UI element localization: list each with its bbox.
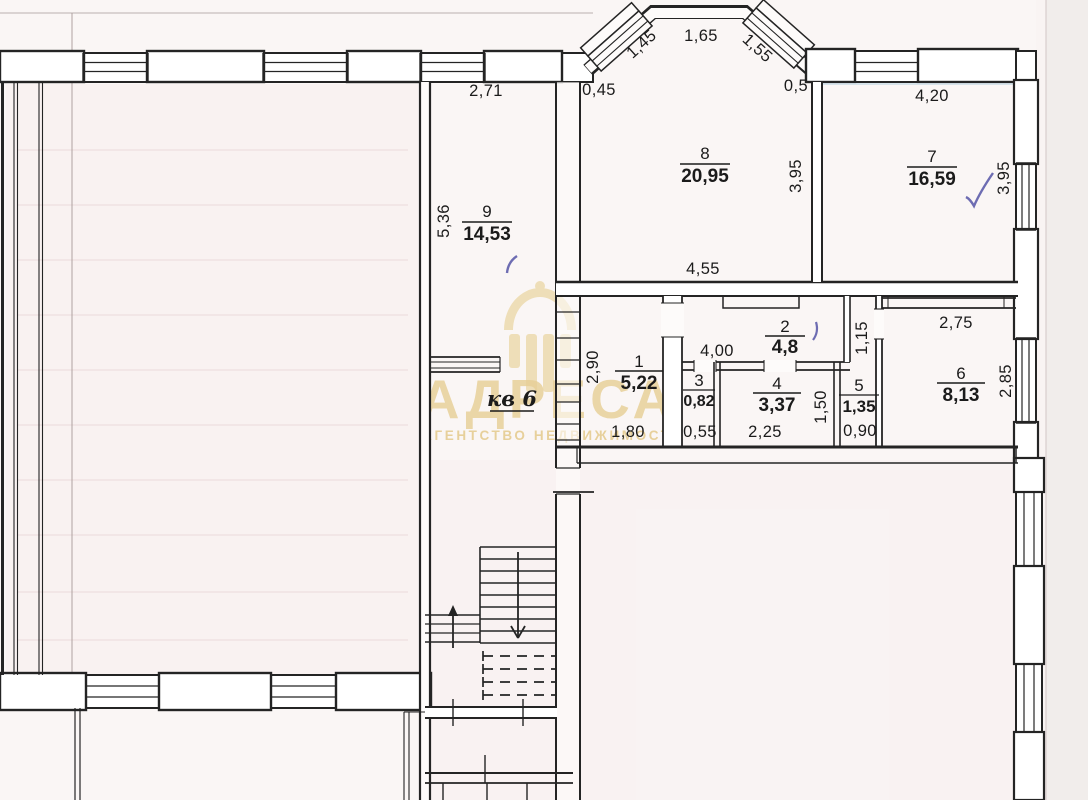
- svg-text:4: 4: [772, 374, 781, 393]
- svg-text:8: 8: [700, 144, 709, 163]
- svg-text:16,59: 16,59: [908, 169, 956, 190]
- dim-room1-width: 1,80: [611, 423, 645, 441]
- apartment-label: кв 6: [487, 386, 537, 411]
- duct-walls: [844, 296, 850, 362]
- dim-bay-top: 1,65: [684, 27, 718, 45]
- dim-room7-right-height: 3,95: [995, 161, 1013, 195]
- dim-room3-width: 0,55: [683, 423, 717, 441]
- dim-room6-top: 2,75: [939, 314, 973, 332]
- svg-text:8,13: 8,13: [943, 385, 980, 406]
- top-wall-left: [0, 51, 593, 82]
- dim-room9-height: 5,36: [435, 204, 453, 238]
- dim-room1-height: 2,90: [584, 350, 602, 384]
- door-opening: [661, 303, 684, 337]
- svg-text:3,37: 3,37: [759, 395, 796, 416]
- door-opening: [764, 360, 796, 372]
- svg-text:5,22: 5,22: [621, 373, 658, 394]
- svg-text:1: 1: [634, 352, 643, 371]
- svg-text:6: 6: [956, 364, 965, 383]
- svg-text:14,53: 14,53: [463, 224, 511, 245]
- dim-room7-width: 4,20: [915, 87, 949, 105]
- room1-right-wall: [661, 296, 684, 447]
- svg-text:5: 5: [854, 376, 863, 395]
- door-opening: [874, 309, 884, 339]
- floor-plan-svg: АДРЕСА АГЕНТСТВО НЕДВИЖИМОСТИ: [0, 0, 1088, 800]
- svg-text:20,95: 20,95: [681, 166, 729, 187]
- dim-room8-bottom: 4,55: [686, 260, 720, 278]
- dim-room5-width: 0,90: [843, 422, 877, 440]
- dim-room6-right: 2,85: [997, 364, 1015, 398]
- dim-duct-height: 1,15: [853, 321, 871, 355]
- room7-divider-wall: [812, 82, 822, 282]
- scanned-floor-plan: АДРЕСА АГЕНТСТВО НЕДВИЖИМОСТИ: [0, 0, 1088, 800]
- dim-top-left: 2,71: [469, 82, 503, 100]
- svg-text:4,8: 4,8: [772, 337, 798, 358]
- dim-room4-height: 1,50: [812, 390, 830, 424]
- dim-bay-left-offset: 0,45: [582, 81, 616, 99]
- apartment-number-text: кв 6: [487, 386, 537, 411]
- svg-text:1,35: 1,35: [842, 397, 875, 416]
- dim-bay-right-offset: 0,5: [784, 77, 808, 95]
- svg-text:7: 7: [927, 147, 936, 166]
- svg-text:0,82: 0,82: [683, 393, 714, 410]
- dim-room78-height: 3,95: [787, 159, 805, 193]
- svg-text:2: 2: [780, 317, 789, 336]
- svg-text:9: 9: [482, 202, 491, 221]
- svg-text:3: 3: [694, 371, 703, 390]
- dim-room4-width: 2,25: [748, 423, 782, 441]
- top-wall-right: [806, 49, 1036, 84]
- dim-hall-width: 4,00: [700, 342, 734, 360]
